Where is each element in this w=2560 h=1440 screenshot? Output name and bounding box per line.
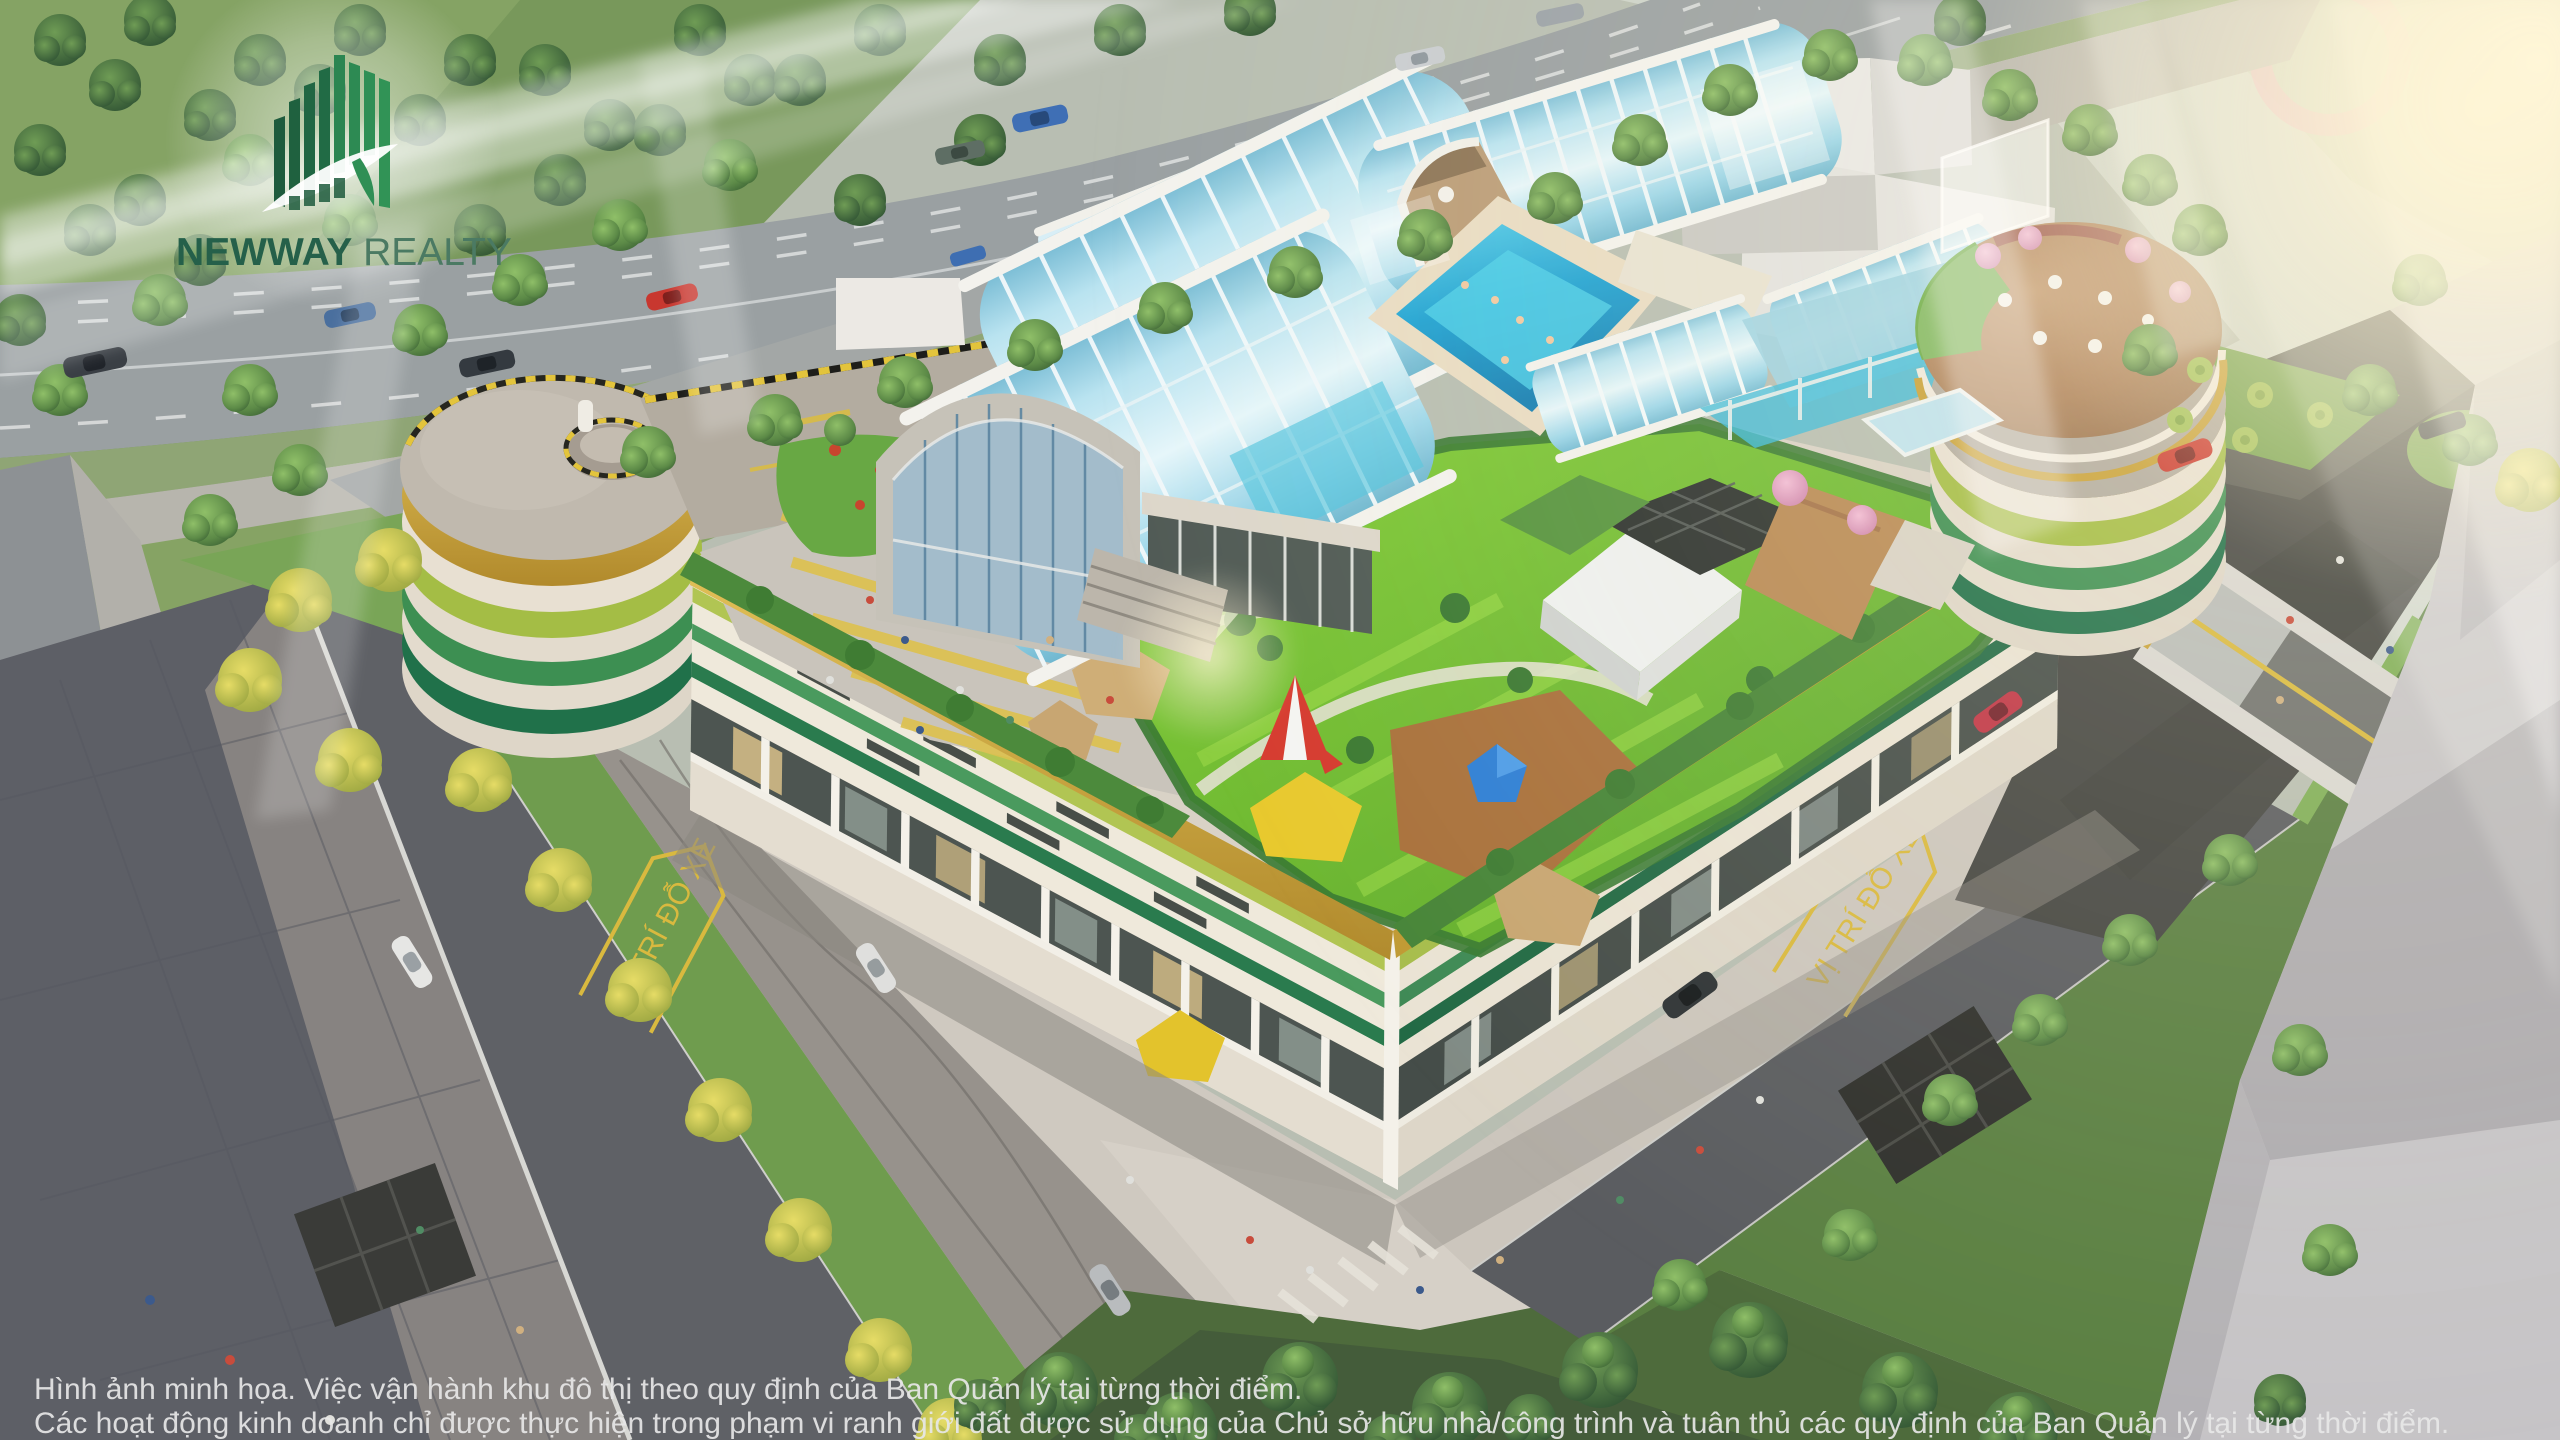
svg-text:Các hoạt động kinh doanh chỉ đ: Các hoạt động kinh doanh chỉ được thực h… — [34, 1407, 2449, 1440]
svg-text:NEWWAY REALTY: NEWWAY REALTY — [176, 231, 512, 274]
svg-text:Hình ảnh minh họa. Việc vận hà: Hình ảnh minh họa. Việc vận hành khu đô … — [34, 1373, 1302, 1406]
